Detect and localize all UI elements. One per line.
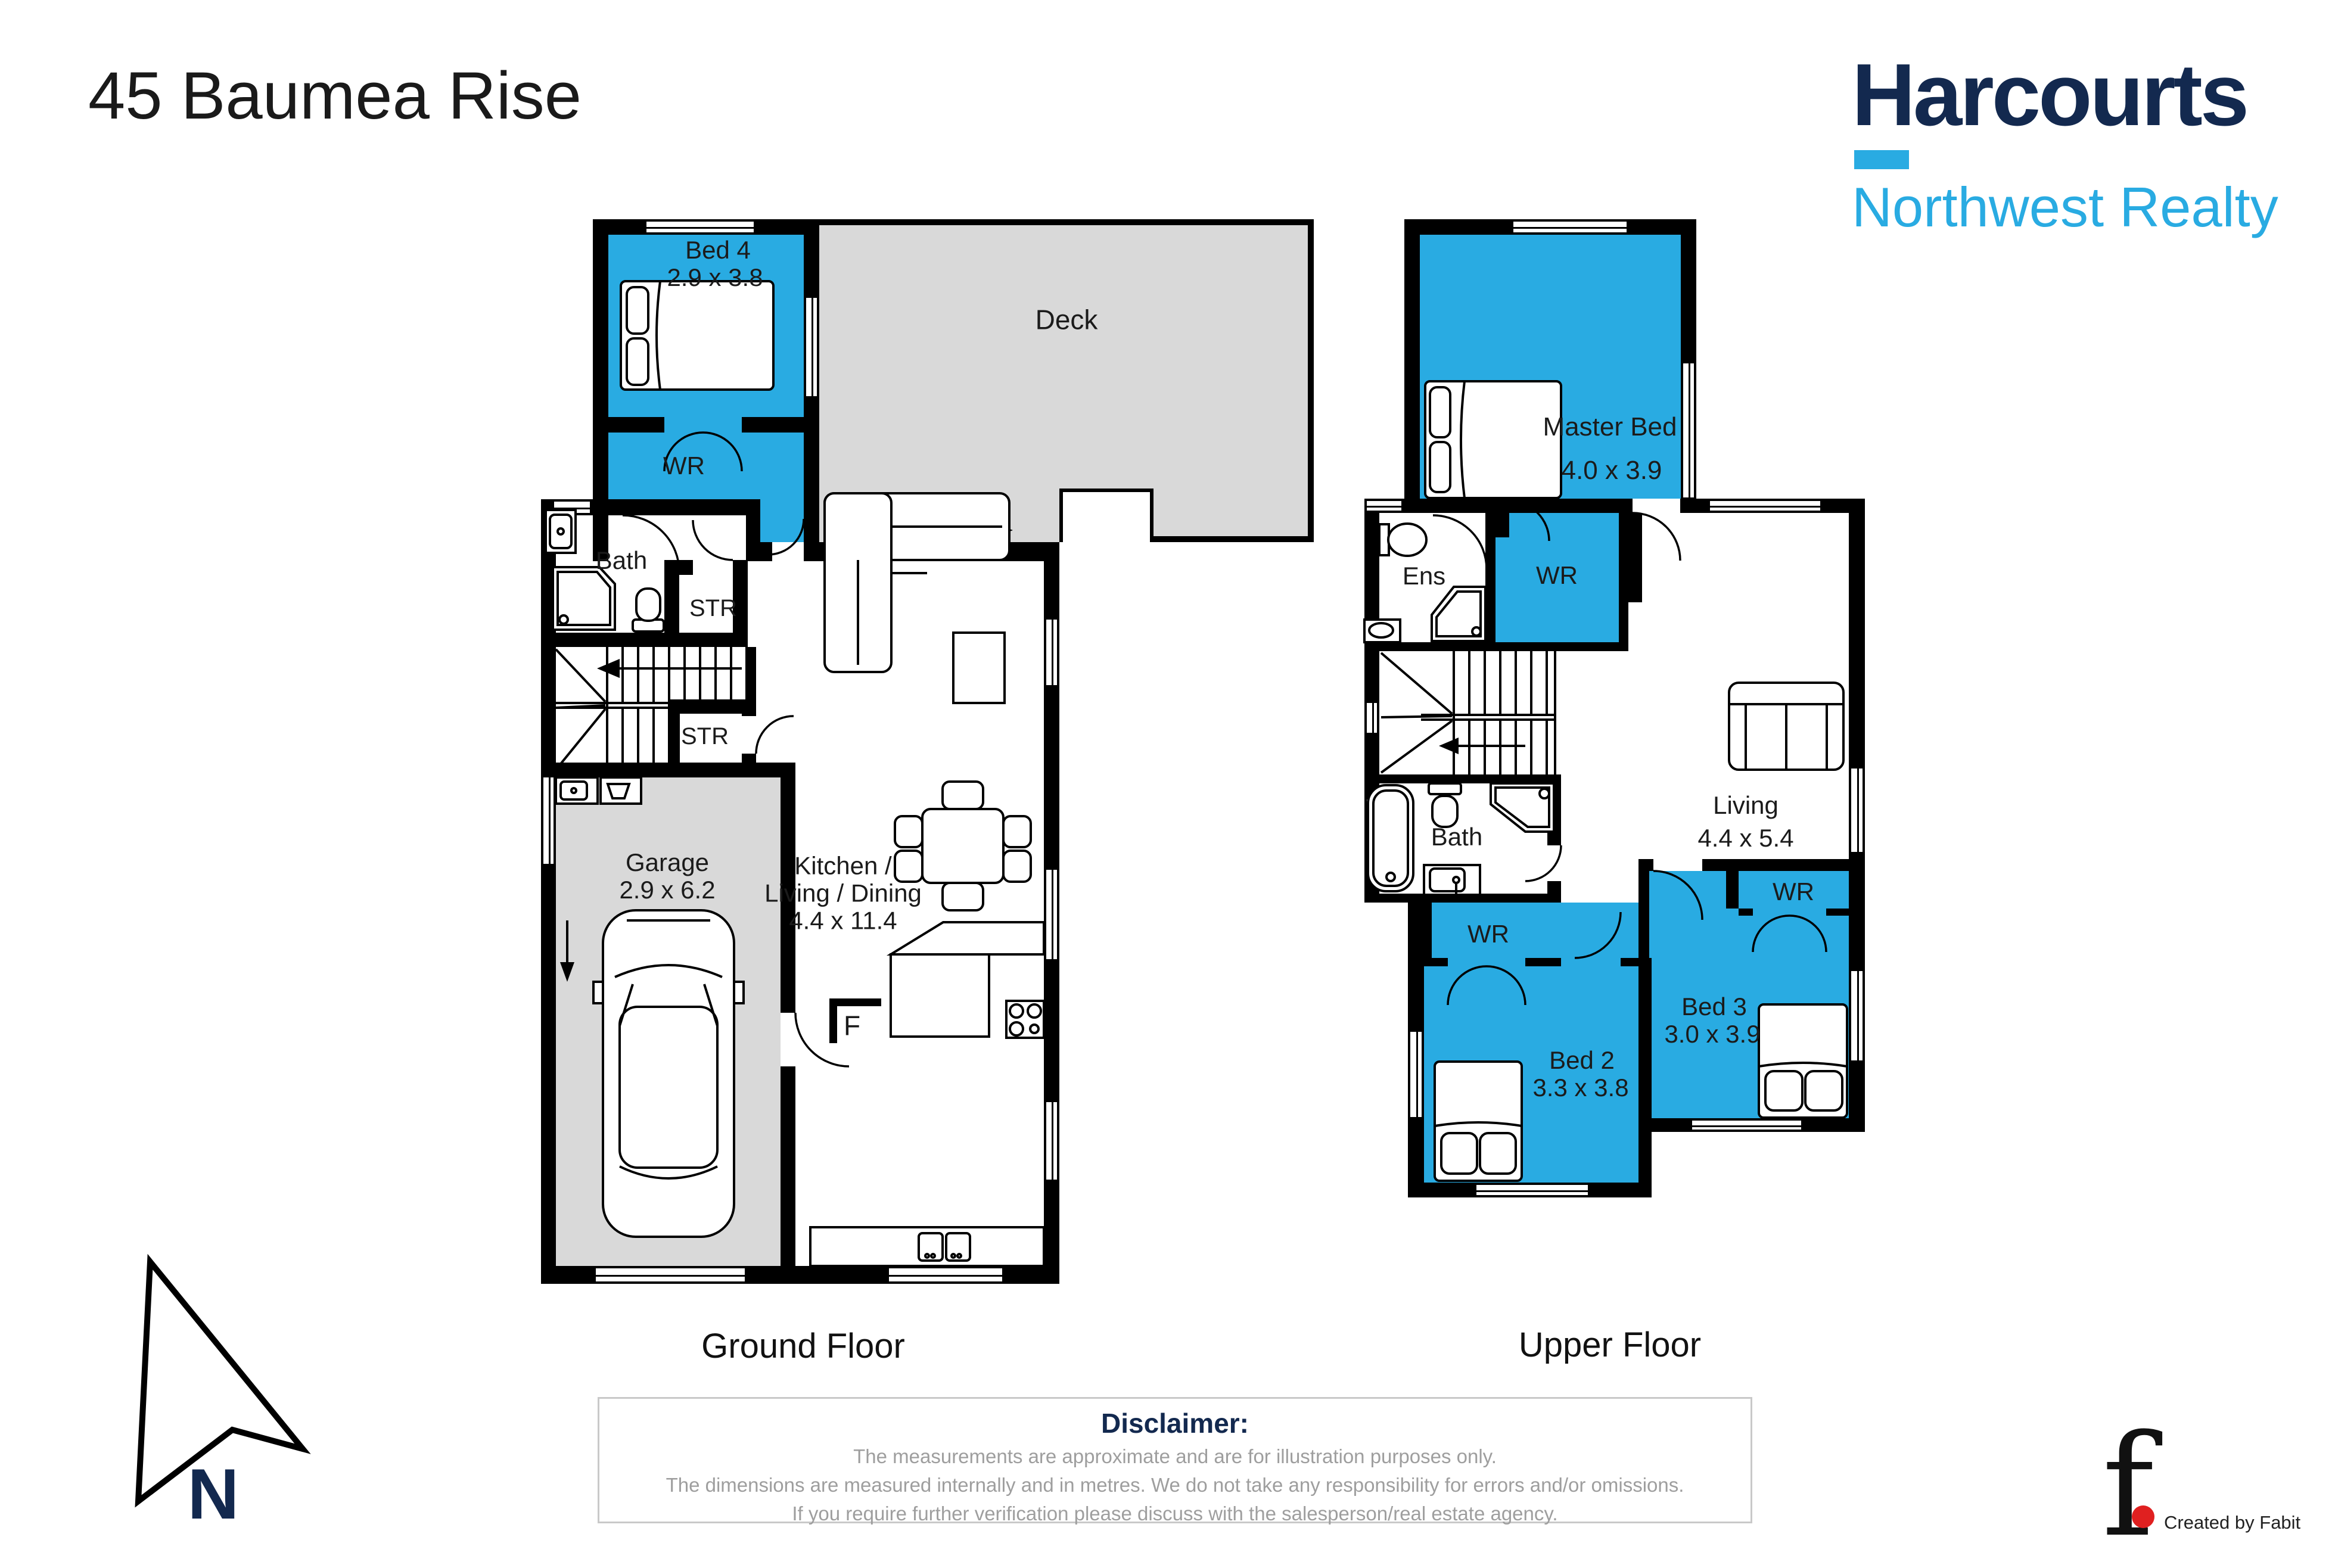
room-dims-bed4: 2.9 x 3.8 <box>667 264 763 291</box>
room-label-garage: Garage <box>626 849 709 876</box>
room-label-master-wr: WR <box>1536 562 1578 589</box>
room-dims-bed3: 3.0 x 3.9 <box>1664 1021 1760 1048</box>
room-dims-garage: 2.9 x 6.2 <box>619 876 715 904</box>
car-icon <box>593 910 744 1237</box>
room-label-fridge: F <box>844 1011 860 1041</box>
sofa-icon-ground <box>825 493 1009 703</box>
room-label-bed4: Bed 4 <box>685 237 751 264</box>
room-label-str-upper: STR <box>689 595 737 621</box>
stairs-ground <box>556 647 748 771</box>
room-label-bath: Bath <box>596 547 647 574</box>
bed-icon-bed4 <box>621 281 773 390</box>
bed-icon-bed3 <box>1759 1004 1847 1118</box>
room-dims-living: 4.4 x 5.4 <box>1697 825 1793 852</box>
kitchen-bench-icon <box>810 922 1044 1266</box>
room-label-living: Living <box>1713 792 1779 819</box>
bed-icon-bed2 <box>1435 1062 1522 1181</box>
stairs-upper <box>1381 651 1555 774</box>
room-label-deck: Deck <box>1036 305 1098 335</box>
plan-lineart <box>0 0 2335 1560</box>
room-label-str-lower: STR <box>681 723 729 749</box>
room-label-bed2-wr: WR <box>1467 920 1509 948</box>
room-label-bed3: Bed 3 <box>1681 993 1747 1021</box>
room-label-kitchen: Kitchen / Living / Dining 4.4 x 11.4 <box>764 853 922 935</box>
room-label-bed3-wr: WR <box>1773 878 1814 906</box>
sofa-icon-upper <box>1729 683 1843 770</box>
bed-icon-master <box>1425 381 1561 498</box>
room-label-wr: WR <box>663 452 705 480</box>
driveway-arrow <box>560 920 574 982</box>
room-label-ens: Ens <box>1403 562 1445 590</box>
room-dims-bed2: 3.3 x 3.8 <box>1532 1074 1628 1102</box>
room-label-bath-upper: Bath <box>1431 823 1482 851</box>
north-arrow-icon <box>138 1262 303 1501</box>
upper-floor-caption: Upper Floor <box>1519 1326 1701 1364</box>
ground-floor-caption: Ground Floor <box>701 1327 905 1365</box>
laundry-tub-icon <box>556 777 641 804</box>
stairs-arrow-upper <box>1439 738 1525 754</box>
room-label-bed2: Bed 2 <box>1549 1047 1615 1074</box>
room-label-master: Master Bed <box>1543 413 1677 441</box>
room-dims-master: 4.0 x 3.9 <box>1562 456 1662 485</box>
